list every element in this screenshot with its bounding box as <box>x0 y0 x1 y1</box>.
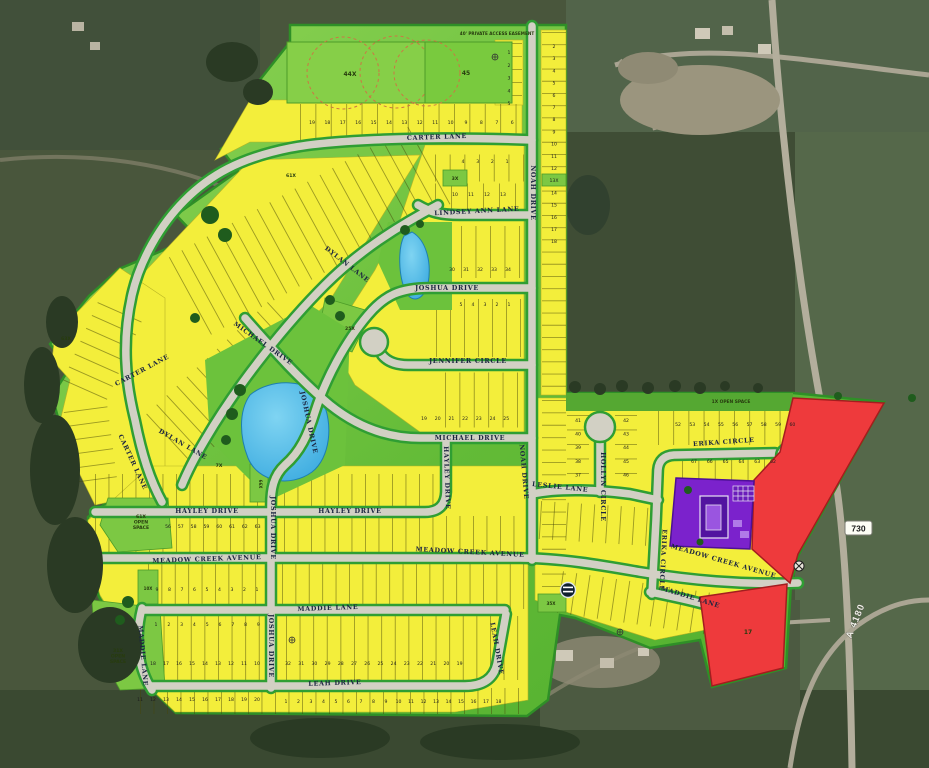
lot-number: 7 <box>553 105 556 111</box>
lot-number: 62 <box>242 524 248 530</box>
lot-number: 15 <box>189 661 195 667</box>
lot-number: 15 <box>551 203 557 209</box>
lot-number: 59 <box>775 422 781 428</box>
lot-number: 15 <box>458 699 464 705</box>
lot-number: 8 <box>168 587 171 593</box>
amenity-parking-grid <box>733 486 754 501</box>
lot-number: 17 <box>163 661 169 667</box>
street-label: HOLLYN CIRCLE <box>599 452 607 522</box>
lot-number: 19 <box>241 697 247 703</box>
lot-number: 32 <box>285 661 291 667</box>
lot-number: 10 <box>448 120 454 126</box>
lot-number: 6 <box>219 622 222 628</box>
lot-number: 61 <box>229 524 235 530</box>
lot-number: 12 <box>150 697 156 703</box>
area-label: 35X <box>546 601 556 606</box>
lot-number: 38 <box>575 459 581 465</box>
lot-number: 10 <box>452 192 458 198</box>
lot-number: 59 <box>203 524 209 530</box>
lot-number: 67 <box>691 459 697 465</box>
street-label: JOSHUA DRIVE <box>267 613 275 678</box>
lot-number: 5 <box>508 101 511 107</box>
lot-number: 6 <box>347 699 350 705</box>
area-label: 1X OPEN SPACE <box>712 399 751 405</box>
lot-number: 4 <box>322 699 325 705</box>
lot-number: 18 <box>150 661 156 667</box>
lot-number: 8 <box>480 120 483 126</box>
lot-number: 4 <box>508 88 511 94</box>
area-label: 45 <box>462 70 470 77</box>
lot-number: 1 <box>506 159 509 165</box>
street-label: JOSHUA DRIVE <box>269 495 277 560</box>
lot-number: 2 <box>496 302 499 308</box>
lot-number: 13 <box>163 697 169 703</box>
lot-number: 20 <box>435 416 441 422</box>
lot-number: 4 <box>553 68 556 74</box>
lot-number: 2 <box>167 622 170 628</box>
lot-number: 66 <box>707 459 713 465</box>
area-label: 10X <box>144 586 153 591</box>
lot-number: 13 <box>401 120 407 126</box>
plat-map: CARTER LANECARTER LANECARTER LANELINDSEY… <box>0 0 929 768</box>
lot-number: 17 <box>215 697 221 703</box>
lot-number: 4 <box>472 302 475 308</box>
lot-number: 14 <box>386 120 392 126</box>
lot-number: 29 <box>325 661 331 667</box>
lot-number: 13 <box>215 661 221 667</box>
lot-number: 9 <box>465 120 468 126</box>
lot-number: 16 <box>202 697 208 703</box>
lot-number: 1 <box>256 587 259 593</box>
lot-number: 3 <box>484 302 487 308</box>
lot-number: 13 <box>500 192 506 198</box>
lot-number: 18 <box>324 120 330 126</box>
lot-number: 12 <box>421 699 427 705</box>
lot-number: 58 <box>191 524 197 530</box>
lot-number: 27 <box>351 661 357 667</box>
lot-number: 5 <box>206 622 209 628</box>
lot-number: 30 <box>311 661 317 667</box>
lot-number: 5 <box>335 699 338 705</box>
lot-number: 7 <box>181 587 184 593</box>
lot-number: 17 <box>551 227 557 233</box>
lot-number: 14 <box>202 661 208 667</box>
lot-number: 2 <box>553 44 556 50</box>
lot-number: 18 <box>496 699 502 705</box>
street-label: MICHAEL DRIVE <box>435 434 506 442</box>
lot-number: 13 <box>433 699 439 705</box>
lot-number: 21 <box>448 416 454 422</box>
lot-number: 2 <box>243 587 246 593</box>
lot-number: 24 <box>391 661 397 667</box>
lot-number: 7 <box>495 120 498 126</box>
lot-number: 39 <box>575 445 581 451</box>
street-label: NOAH DRIVE <box>529 165 537 220</box>
lot-number: 2 <box>508 63 511 69</box>
lot-number: 4 <box>462 159 465 165</box>
lot-number: 15 <box>189 697 195 703</box>
lot-number: 25 <box>377 661 383 667</box>
lot-number: 1 <box>508 302 511 308</box>
lot-number: 26 <box>364 661 370 667</box>
lot-number: 3 <box>553 56 556 62</box>
lot-number: 57 <box>178 524 184 530</box>
area-label: 66X <box>258 480 263 489</box>
lot-number: 10 <box>396 699 402 705</box>
lot-number: 3 <box>231 587 234 593</box>
lot-number: 42 <box>623 418 629 424</box>
lot-number: 22 <box>417 661 423 667</box>
lot-number: 45 <box>623 459 629 465</box>
lot-number: 57 <box>747 422 753 428</box>
lot-number: 17 <box>483 699 489 705</box>
lot-number: 19 <box>457 661 463 667</box>
lot-number: 1 <box>155 622 158 628</box>
lot-number: 63 <box>255 524 261 530</box>
lot-number: 22 <box>462 416 468 422</box>
area-label: 44X <box>344 71 357 78</box>
lot-number: 8 <box>553 117 556 123</box>
lot-number: 33 <box>491 267 497 273</box>
lot-number: 60 <box>789 422 795 428</box>
lot-number: 5 <box>553 81 556 87</box>
area-label: 7X <box>216 463 223 469</box>
lot-number: 11 <box>137 697 143 703</box>
lot-number: 28 <box>338 661 344 667</box>
lot-number: 9 <box>257 622 260 628</box>
lot-number: 11 <box>468 192 474 198</box>
lot-number: 4 <box>193 622 196 628</box>
lot-number: 44 <box>623 445 629 451</box>
lot-number: 2 <box>297 699 300 705</box>
street-label: JENNIFER CIRCLE <box>428 357 507 365</box>
lot-number: 56 <box>165 524 171 530</box>
lot-number: 12 <box>551 166 557 172</box>
lot-number: 24 <box>490 416 496 422</box>
lot-number: 19 <box>421 416 427 422</box>
lot-number: 8 <box>372 699 375 705</box>
lot-number: 12 <box>417 120 423 126</box>
lot-number: 3 <box>508 76 511 82</box>
lot-number: 12 <box>484 192 490 198</box>
lot-number: 16 <box>176 661 182 667</box>
lot-number: 3 <box>180 622 183 628</box>
lot-number: 14 <box>176 697 182 703</box>
lot-number: 10 <box>551 142 557 148</box>
lot-number: 16 <box>551 215 557 221</box>
lot-number: 14 <box>446 699 452 705</box>
area-label: 17 <box>744 629 752 636</box>
lot-number: 20 <box>254 697 260 703</box>
lot-number: 55 <box>718 422 724 428</box>
area-label: 25X <box>345 326 355 332</box>
lot-number: 41 <box>575 418 581 424</box>
lot-number: 8 <box>244 622 247 628</box>
street-label: HAYLEY DRIVE <box>175 507 238 515</box>
lot-number: 62 <box>770 459 776 465</box>
lot-number: 6 <box>511 120 514 126</box>
lot-number: 37 <box>575 472 581 478</box>
lot-number: 63 <box>754 459 760 465</box>
lot-number: 11 <box>432 120 438 126</box>
lot-number: 64 <box>738 459 744 465</box>
lot-number: 5 <box>206 587 209 593</box>
lot-number: 53 <box>689 422 695 428</box>
lot-number: 30 <box>449 267 455 273</box>
openspace-1x-strip <box>566 393 793 411</box>
lot-number: 6 <box>553 93 556 99</box>
lot-number: 1 <box>508 50 511 56</box>
lot-number: 16 <box>471 699 477 705</box>
lot-number: 9 <box>553 129 556 135</box>
lot-number: 14 <box>551 190 557 196</box>
area-label: 3X <box>452 176 459 182</box>
street-label: HAYLEY DRIVE <box>318 507 381 515</box>
lot-number: 19 <box>309 120 315 126</box>
area-label: 61X <box>286 173 296 179</box>
lot-number: 20 <box>443 661 449 667</box>
lot-number: 7 <box>231 622 234 628</box>
lot-number: 2 <box>491 159 494 165</box>
lot-number: 34 <box>505 267 511 273</box>
lot-number: 43 <box>623 432 629 438</box>
lot-number: 17 <box>340 120 346 126</box>
area-label: 63X <box>61 336 71 342</box>
lot-number: 15 <box>371 120 377 126</box>
lot-number: 52 <box>675 422 681 428</box>
lot-number: 16 <box>355 120 361 126</box>
lot-number: 65 <box>723 459 729 465</box>
lot-number: 46 <box>623 472 629 478</box>
lot-number: 9 <box>385 699 388 705</box>
lot-number: 23 <box>476 416 482 422</box>
lot-number: 25 <box>503 416 509 422</box>
street-label: JOSHUA DRIVE <box>414 284 479 292</box>
lot-number: 11 <box>241 661 247 667</box>
road-monument-marker <box>561 583 576 598</box>
lot-number: 54 <box>704 422 710 428</box>
lot-number: 23 <box>404 661 410 667</box>
lot-number: 40 <box>575 432 581 438</box>
lot-number: 31 <box>463 267 469 273</box>
lot-number: 13X <box>550 178 559 184</box>
lot-number: 18 <box>551 239 557 245</box>
lot-number: 6 <box>193 587 196 593</box>
lot-number: 7 <box>360 699 363 705</box>
lot-number: 3 <box>476 159 479 165</box>
lot-number: 4 <box>218 587 221 593</box>
lot-number: 12 <box>228 661 234 667</box>
lot-number: 1 <box>285 699 288 705</box>
lot-number: 21 <box>430 661 436 667</box>
lot-number: 58 <box>761 422 767 428</box>
area-label: 40' PRIVATE ACCESS EASEMENT <box>460 31 535 36</box>
lot-number: 5 <box>460 302 463 308</box>
lot-number: 11 <box>551 154 557 160</box>
lot-number: 9 <box>156 587 159 593</box>
lot-number: 10 <box>254 661 260 667</box>
lot-number: 60 <box>216 524 222 530</box>
lot-number: 32 <box>477 267 483 273</box>
crossed-circle-marker <box>794 561 804 571</box>
route-shield-text: 730 <box>851 524 865 534</box>
lot-number: 11 <box>408 699 414 705</box>
lot-number: 31 <box>298 661 304 667</box>
lot-number: 56 <box>732 422 738 428</box>
lot-number: 18 <box>228 697 234 703</box>
lot-number: 3 <box>310 699 313 705</box>
